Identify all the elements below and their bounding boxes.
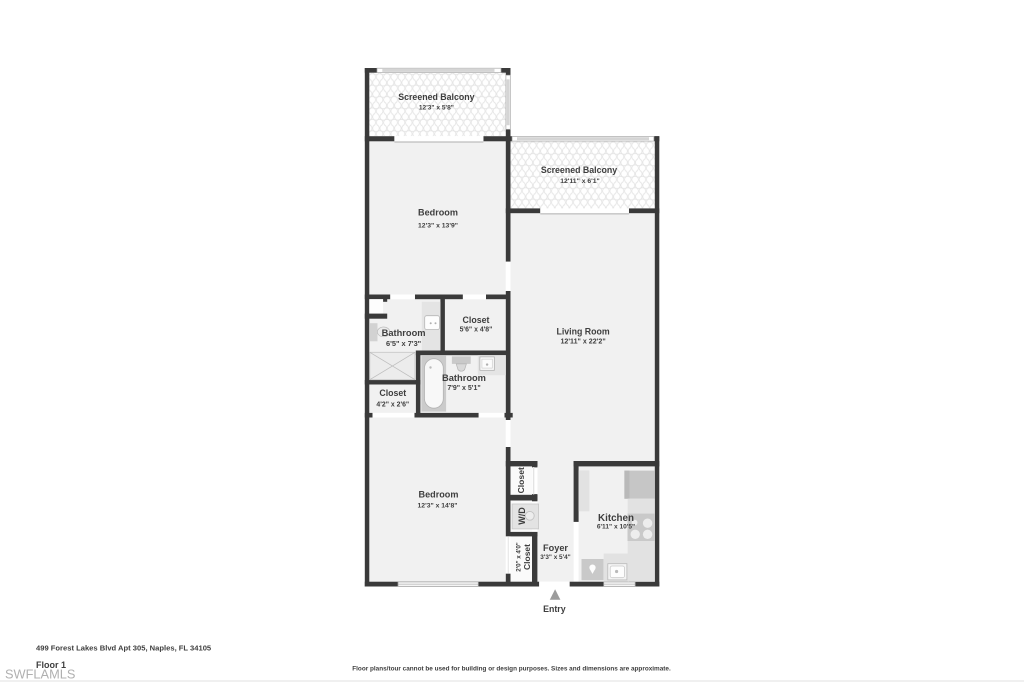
- svg-text:Floor plans/tour cannot be use: Floor plans/tour cannot be used for buil…: [352, 666, 671, 673]
- svg-text:Bedroom: Bedroom: [419, 490, 459, 500]
- svg-text:12'11" x 6'1": 12'11" x 6'1": [560, 178, 600, 185]
- svg-text:12'3" x 5'8": 12'3" x 5'8": [419, 105, 454, 112]
- svg-text:7'9" x 5'1": 7'9" x 5'1": [447, 385, 480, 392]
- svg-text:Closet: Closet: [522, 544, 532, 570]
- svg-text:Closet: Closet: [379, 388, 406, 398]
- svg-text:3'3" x 5'4": 3'3" x 5'4": [540, 554, 570, 561]
- svg-text:Living Room: Living Room: [556, 327, 609, 337]
- svg-text:Bathroom: Bathroom: [442, 373, 486, 383]
- svg-text:Screened Balcony: Screened Balcony: [398, 92, 474, 102]
- svg-text:499 Forest Lakes Blvd Apt 305,: 499 Forest Lakes Blvd Apt 305, Naples, F…: [36, 644, 212, 653]
- svg-text:Bedroom: Bedroom: [418, 207, 458, 217]
- svg-text:Entry: Entry: [543, 604, 566, 614]
- svg-text:Closet: Closet: [516, 467, 526, 493]
- svg-text:Kitchen: Kitchen: [598, 513, 634, 524]
- svg-text:Screened Balcony: Screened Balcony: [541, 165, 617, 175]
- svg-text:Bathroom: Bathroom: [382, 328, 426, 338]
- svg-text:SWFLAMLS: SWFLAMLS: [5, 667, 75, 682]
- svg-text:6'5" x 7'3": 6'5" x 7'3": [386, 339, 422, 348]
- svg-text:5'6" x 4'8": 5'6" x 4'8": [460, 327, 493, 334]
- svg-text:12'3" x 14'8": 12'3" x 14'8": [418, 502, 458, 509]
- svg-text:12'3" x 13'9": 12'3" x 13'9": [418, 222, 458, 229]
- svg-text:Foyer: Foyer: [543, 543, 568, 553]
- svg-text:W/D: W/D: [517, 507, 527, 525]
- svg-text:Closet: Closet: [463, 315, 490, 325]
- svg-text:6'11" x 10'5": 6'11" x 10'5": [597, 524, 635, 531]
- svg-text:4'2" x 2'6": 4'2" x 2'6": [376, 402, 409, 409]
- svg-text:12'11" x 22'2": 12'11" x 22'2": [560, 338, 605, 346]
